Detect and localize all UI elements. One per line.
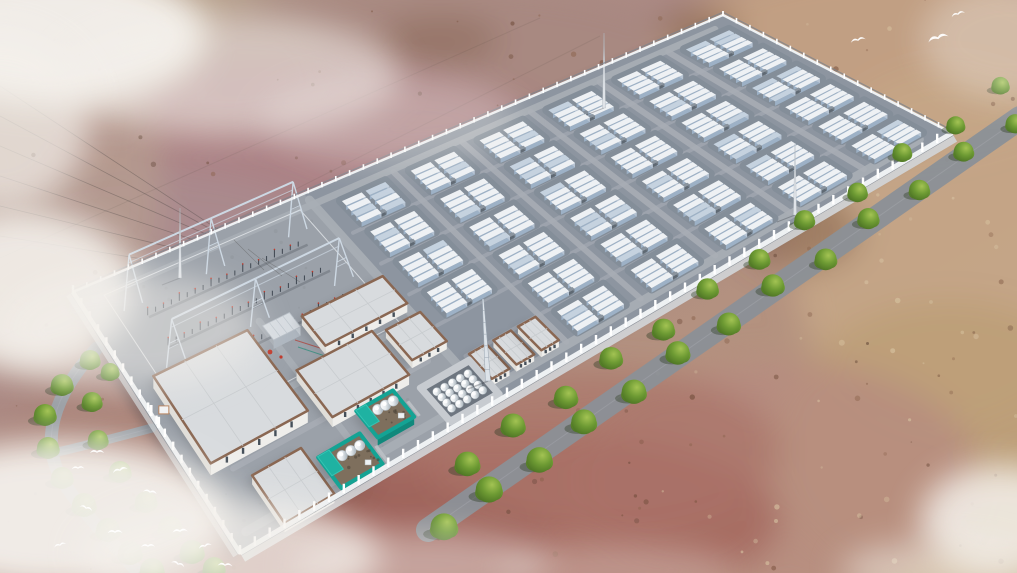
terrain-speck — [866, 342, 869, 345]
terrain-speck — [771, 566, 776, 571]
teal-tank-dome — [375, 406, 379, 410]
terrain-speck — [138, 135, 142, 139]
tank-dome — [462, 381, 466, 385]
teal-tank-dome — [339, 452, 343, 456]
tree — [455, 452, 480, 477]
terrain-speck-light — [708, 515, 712, 519]
equipment-speck — [377, 458, 380, 461]
terrain-speck — [999, 279, 1004, 284]
window — [553, 345, 555, 349]
concrete-speck — [298, 307, 300, 309]
terrain-speck-light — [817, 400, 820, 403]
terrain-speck — [532, 479, 537, 484]
window — [226, 457, 228, 463]
red-equipment — [268, 350, 273, 355]
window — [352, 334, 354, 339]
terrain-speck — [621, 514, 623, 516]
tree — [554, 386, 577, 409]
tree — [954, 142, 974, 162]
aux-box — [398, 413, 404, 418]
equipment-speck — [385, 419, 387, 421]
terrain-speck — [628, 462, 630, 464]
terrain-speck — [538, 14, 540, 16]
terrain-speck — [677, 319, 683, 325]
terrain-speck-light — [909, 217, 912, 220]
tank-dome — [452, 395, 456, 399]
tree — [893, 143, 912, 162]
terrain-speck — [639, 440, 644, 445]
equipment-speck — [395, 409, 397, 411]
terrain-speck-light — [876, 193, 879, 196]
terrain-speck-light — [908, 418, 911, 421]
window — [504, 373, 506, 377]
tree — [717, 312, 740, 335]
terrain-speck-light — [923, 362, 925, 364]
window — [344, 412, 346, 417]
equipment-speck — [391, 422, 393, 424]
window — [274, 430, 276, 436]
teal-tank-dome — [356, 442, 360, 446]
terrain-speck — [866, 49, 868, 51]
tank-dome — [456, 401, 460, 405]
window — [499, 376, 501, 380]
terrain-speck-light — [895, 298, 901, 304]
terrain-speck — [949, 391, 953, 395]
tree — [697, 278, 718, 299]
terrain-speck — [690, 394, 695, 399]
tree — [527, 447, 553, 473]
tree — [600, 347, 623, 370]
tank-dome — [465, 371, 469, 375]
teal-tank-dome — [390, 397, 394, 401]
terrain-speck — [540, 478, 544, 482]
insulator-tip — [264, 291, 266, 293]
terrain-speck — [295, 156, 298, 159]
teal-tank-dome — [348, 447, 352, 451]
terrain-speck-light — [879, 258, 883, 262]
tree — [858, 208, 879, 229]
terrain-speck — [692, 316, 696, 320]
tree — [501, 413, 525, 437]
tank-dome — [444, 400, 448, 404]
terrain-speck — [689, 443, 692, 446]
cloud — [0, 270, 260, 390]
teal-tank-dome — [382, 402, 386, 406]
terrain-speck — [938, 374, 941, 377]
terrain-speck-light — [864, 280, 868, 284]
tree — [848, 183, 868, 203]
tank-dome — [449, 405, 453, 409]
tank-dome — [454, 385, 458, 389]
insulator-tip — [312, 271, 314, 273]
tree — [815, 248, 837, 270]
terrain-speck-light — [973, 334, 978, 339]
terrain-speck-light — [952, 197, 955, 200]
tank-dome — [472, 392, 476, 396]
equipment-speck — [358, 454, 361, 457]
window — [544, 350, 546, 354]
tank-dome — [447, 390, 451, 394]
terrain-speck-light — [765, 561, 769, 565]
concrete-speck — [305, 267, 308, 270]
equipment-speck — [354, 455, 357, 458]
equipment-speck — [388, 411, 390, 413]
insulator-tip — [280, 286, 282, 288]
terrain-patch — [380, 15, 500, 65]
tree — [762, 274, 784, 296]
terrain-speck-light — [929, 300, 933, 304]
window — [392, 312, 394, 317]
equipment-speck — [373, 457, 376, 460]
window — [428, 353, 430, 357]
facility-render — [0, 0, 1017, 573]
terrain-speck — [206, 162, 209, 165]
terrain-speck-light — [694, 370, 697, 373]
equipment-speck — [348, 456, 350, 458]
tree — [476, 476, 502, 502]
red-equipment — [279, 355, 282, 358]
terrain-speck-light — [884, 497, 890, 503]
terrain-speck-light — [662, 490, 664, 492]
window — [395, 384, 397, 389]
window — [524, 362, 526, 366]
concrete-speck — [274, 229, 278, 233]
terrain-speck — [991, 102, 995, 106]
terrain-speck — [634, 518, 639, 523]
terrain-speck — [457, 21, 459, 23]
terrain-speck — [855, 396, 861, 402]
terrain-speck — [855, 360, 858, 363]
concrete-speck — [303, 286, 306, 289]
terrain-speck — [509, 54, 514, 59]
terrain-speck — [211, 172, 216, 177]
terrain-speck — [774, 375, 779, 380]
window — [549, 347, 551, 351]
insulator-tip — [210, 278, 212, 280]
terrain-speck-light — [887, 26, 892, 31]
terrain-speck-light — [800, 337, 803, 340]
terrain-speck — [634, 494, 637, 497]
terrain-speck — [911, 441, 913, 443]
terrain-speck-light — [806, 23, 809, 26]
tree — [82, 392, 102, 412]
tree — [794, 210, 814, 230]
terrain-speck — [695, 500, 698, 503]
insulator-tip — [248, 301, 250, 303]
terrain-speck — [506, 510, 510, 514]
tank-dome — [470, 376, 474, 380]
tree — [34, 404, 56, 426]
window — [420, 357, 422, 361]
window — [258, 439, 260, 445]
terrain-speck-light — [821, 466, 823, 468]
tank-dome — [464, 396, 468, 400]
terrain-speck-light — [774, 504, 779, 509]
terrain-speck-light — [753, 539, 758, 544]
terrain-speck — [972, 331, 975, 334]
concrete-speck — [225, 493, 227, 495]
insulator-tip — [226, 273, 228, 275]
tree — [666, 341, 690, 365]
terrain-speck — [371, 10, 373, 12]
terrain-speck — [16, 405, 18, 407]
tree — [652, 319, 674, 341]
insulator-tip — [296, 275, 298, 277]
equipment-speck — [370, 456, 372, 458]
terrain-speck — [952, 357, 955, 360]
terrain-speck — [773, 254, 777, 258]
terrain-speck-light — [741, 551, 744, 554]
window — [379, 319, 381, 324]
window — [365, 326, 367, 331]
window — [520, 364, 522, 368]
equipment-speck — [368, 449, 371, 452]
window — [290, 421, 292, 427]
insulator-tip — [258, 259, 260, 261]
aux-box — [365, 460, 371, 465]
insulator-tip — [318, 302, 320, 304]
window — [529, 359, 531, 363]
equipment-speck — [348, 458, 350, 460]
window — [338, 341, 340, 346]
window — [242, 448, 244, 454]
terrain-speck-light — [878, 233, 881, 236]
cloud — [260, 75, 520, 165]
terrain-speck — [883, 452, 887, 456]
aerial-render-scene — [0, 0, 1017, 573]
terrain-speck — [638, 507, 641, 510]
tree — [749, 249, 770, 270]
terrain-speck — [1008, 325, 1014, 331]
tank-dome — [442, 384, 446, 388]
tank-dome — [450, 380, 454, 384]
terrain-speck — [571, 52, 576, 57]
terrain-speck — [926, 463, 929, 466]
terrain-speck-light — [839, 340, 845, 346]
tree — [909, 180, 929, 200]
terrain-speck — [808, 312, 813, 317]
tree — [947, 116, 965, 134]
insulator-tip — [242, 263, 244, 265]
tree — [622, 380, 646, 404]
terrain-speck — [151, 162, 156, 167]
terrain-speck-light — [774, 519, 778, 523]
tree — [571, 409, 596, 434]
terrain-speck-light — [994, 245, 998, 249]
terrain-speck — [724, 338, 729, 343]
terrain-speck — [644, 499, 649, 504]
equipment-speck — [347, 466, 350, 469]
tank-dome — [434, 389, 438, 393]
insulator-tip — [290, 244, 292, 246]
terrain-speck — [723, 435, 726, 438]
tank-dome — [439, 394, 443, 398]
insulator-tip — [274, 249, 276, 251]
window — [495, 378, 497, 382]
window — [437, 348, 439, 352]
terrain-speck — [658, 16, 663, 21]
tank-dome — [459, 391, 463, 395]
terrain-speck-light — [985, 220, 990, 225]
gatehouse — [159, 406, 169, 414]
terrain-speck-light — [961, 331, 965, 335]
terrain-speck — [513, 78, 515, 80]
terrain-speck — [866, 383, 868, 385]
tank-dome — [457, 375, 461, 379]
terrain-speck — [330, 170, 333, 173]
terrain-speck — [510, 21, 514, 25]
terrain-speck — [625, 409, 629, 413]
terrain-speck-light — [857, 513, 862, 518]
concrete-speck — [230, 255, 234, 259]
terrain-speck-light — [890, 348, 895, 353]
concrete-speck — [280, 241, 283, 244]
tank-dome — [480, 387, 484, 391]
equipment-speck — [394, 411, 397, 414]
terrain-speck — [989, 232, 994, 237]
